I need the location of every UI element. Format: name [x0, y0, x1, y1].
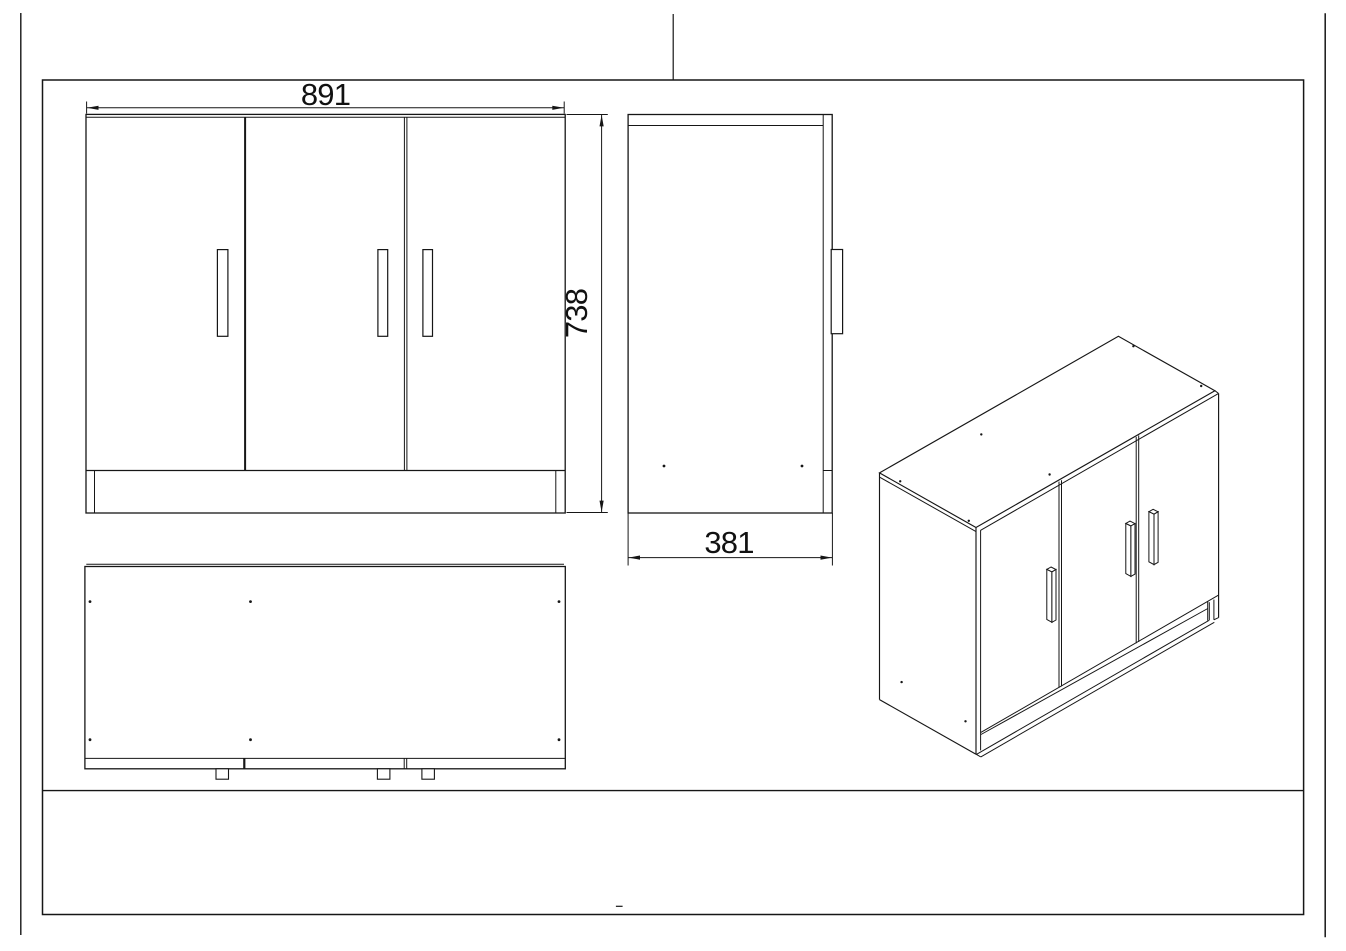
svg-text:891: 891: [301, 77, 350, 112]
svg-text:381: 381: [704, 525, 753, 560]
svg-text:738: 738: [559, 289, 594, 338]
